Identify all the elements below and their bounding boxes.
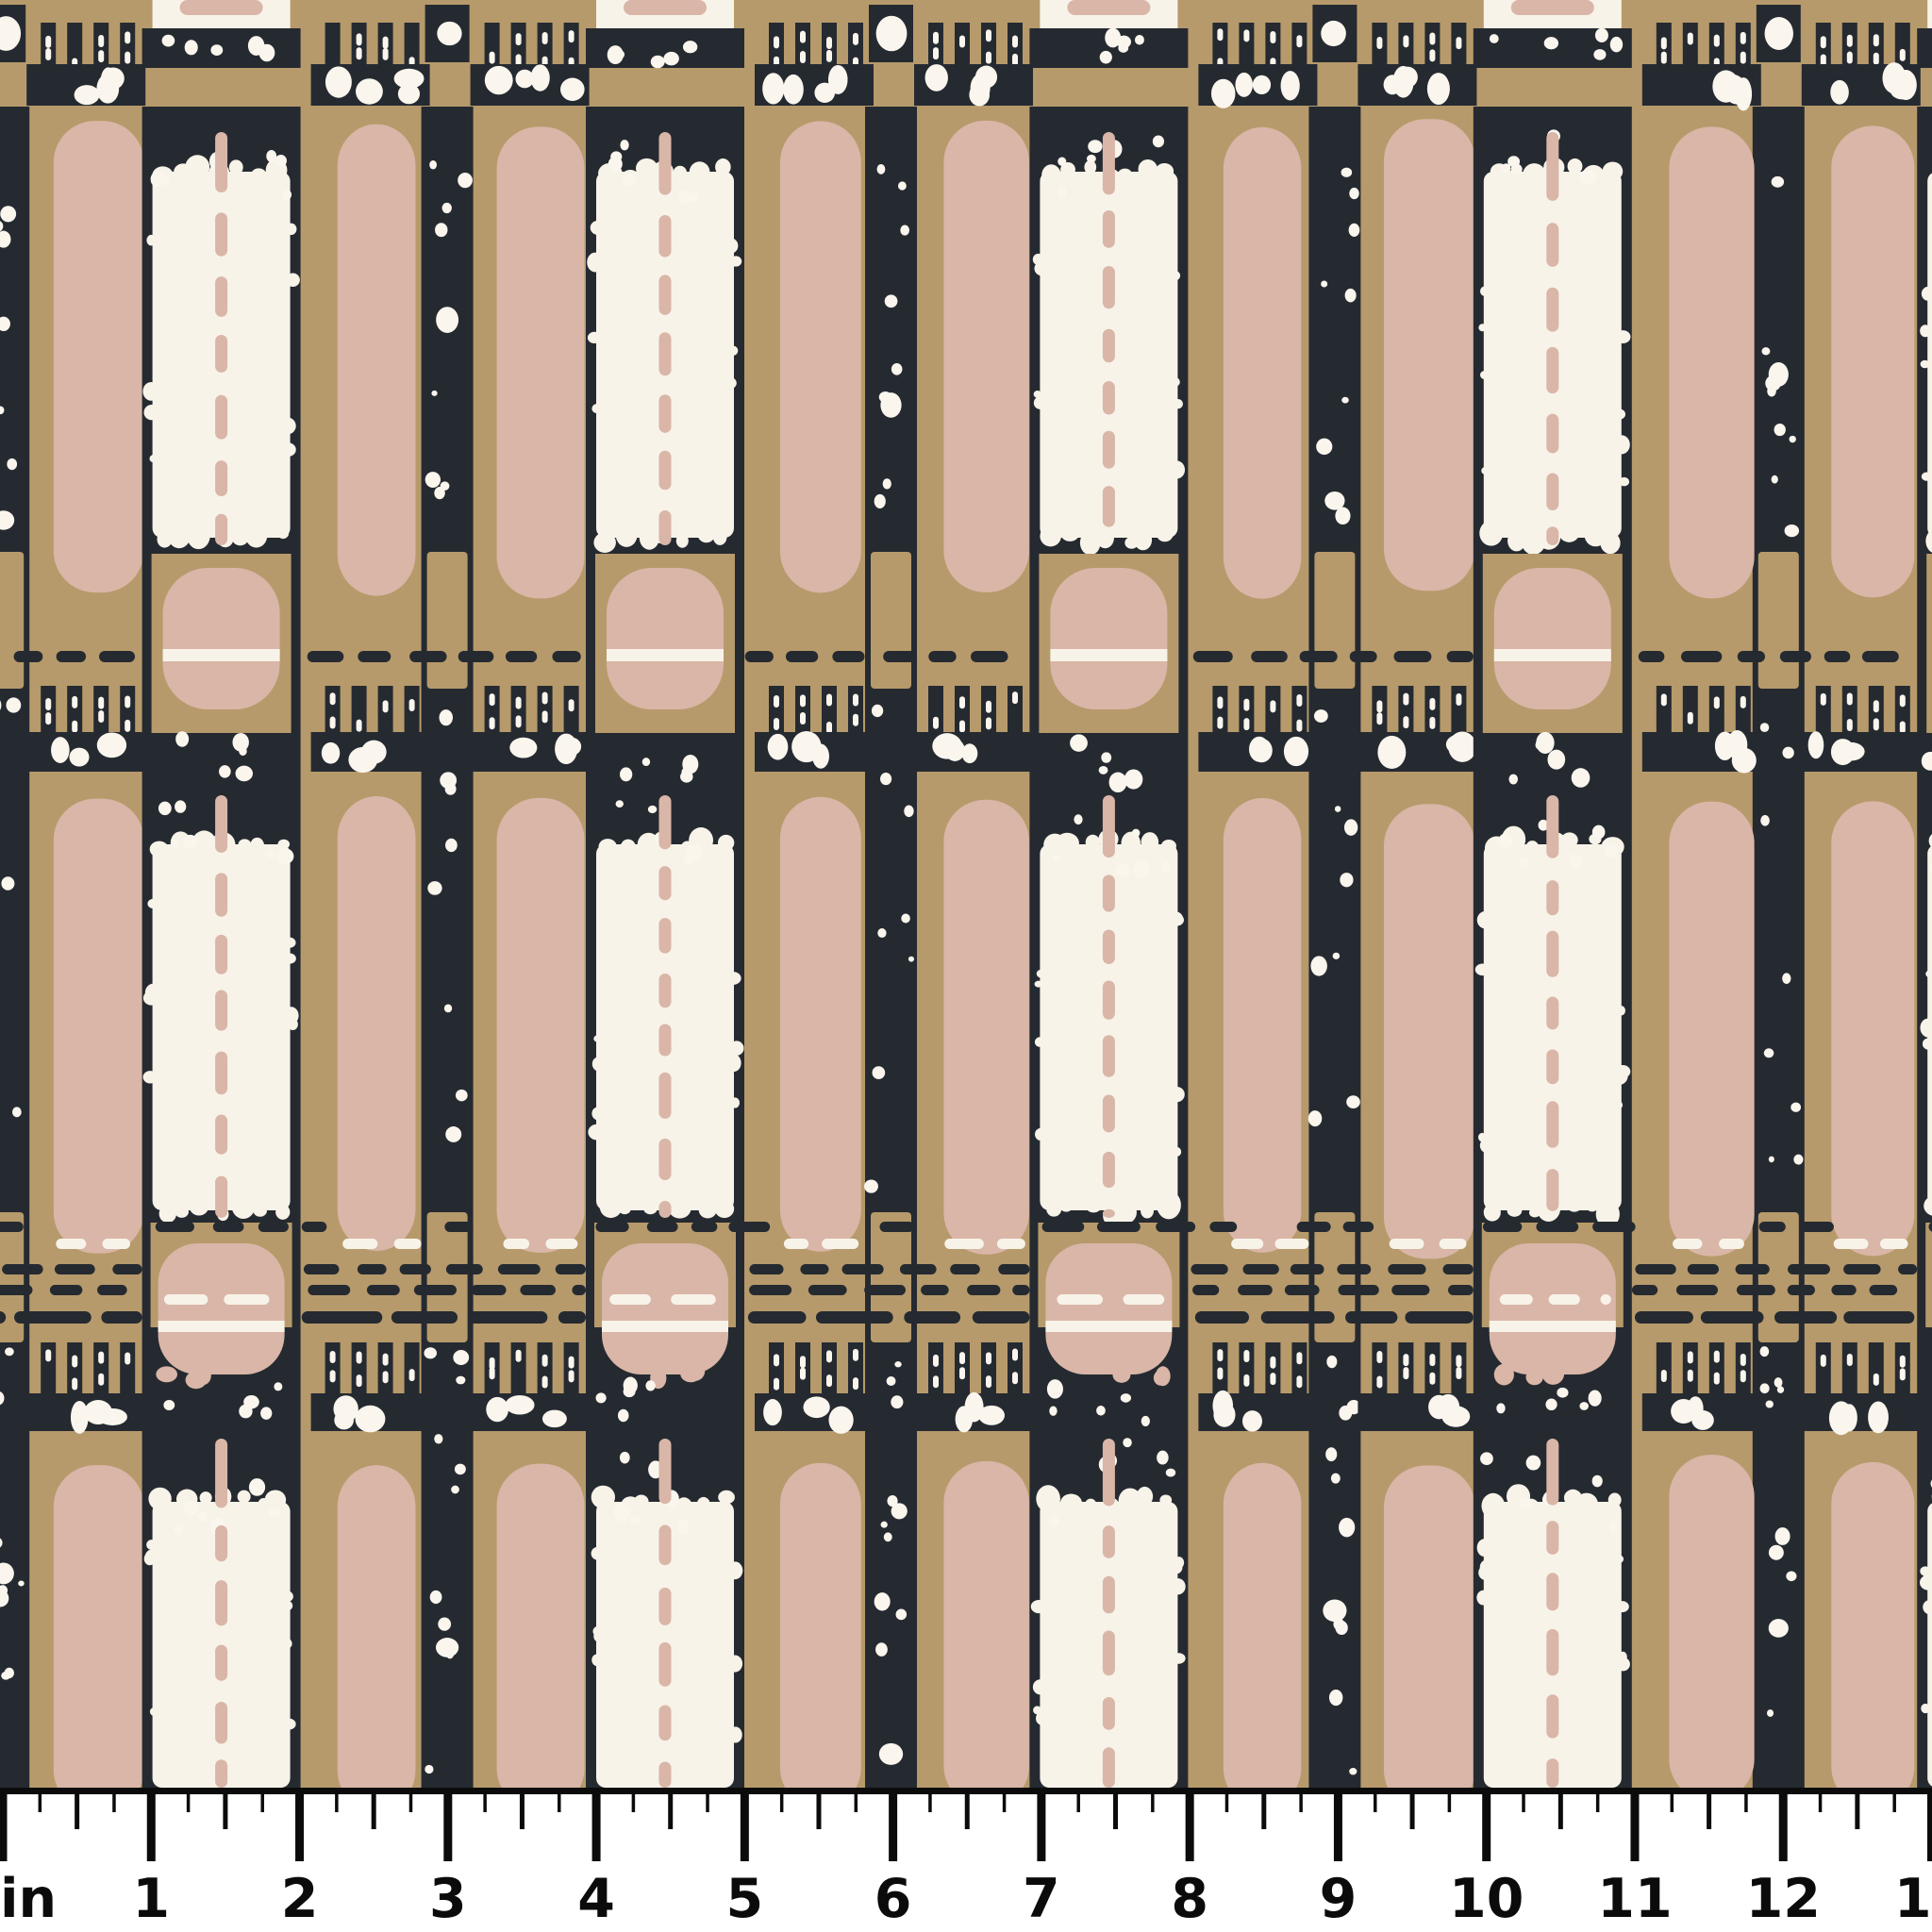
ruler-inch-label: 4	[577, 1868, 615, 1930]
pattern-tile	[1917, 0, 1932, 1810]
pattern-canvas: in12345678910111213	[0, 0, 1932, 1932]
ruler: in12345678910111213	[0, 1788, 1932, 1932]
ruler-inch-label: 13	[1894, 1868, 1932, 1930]
ruler-inch-label: 11	[1597, 1868, 1672, 1930]
ruler-inch-label: 6	[874, 1868, 912, 1930]
fabric-swatch-image: in12345678910111213	[0, 0, 1932, 1932]
pattern-tile	[586, 0, 1033, 1809]
ruler-inch-label: 1	[132, 1868, 170, 1930]
ruler-inch-label: 2	[281, 1868, 319, 1930]
ruler-inch-label: 12	[1746, 1868, 1821, 1930]
pattern-tile	[142, 0, 590, 1811]
ruler-inch-label: 7	[1023, 1868, 1060, 1930]
ruler-inch-label: 5	[726, 1868, 764, 1930]
pattern-tile	[0, 0, 145, 1811]
ruler-inch-label: 10	[1449, 1868, 1524, 1930]
ruler-inch-label: 8	[1171, 1868, 1208, 1930]
ruler-inch-label: in	[0, 1868, 57, 1930]
pattern-tile	[1029, 0, 1476, 1811]
pattern-tile	[1474, 0, 1921, 1808]
ruler-inch-label: 3	[429, 1868, 467, 1930]
ruler-inch-label: 9	[1320, 1868, 1357, 1930]
